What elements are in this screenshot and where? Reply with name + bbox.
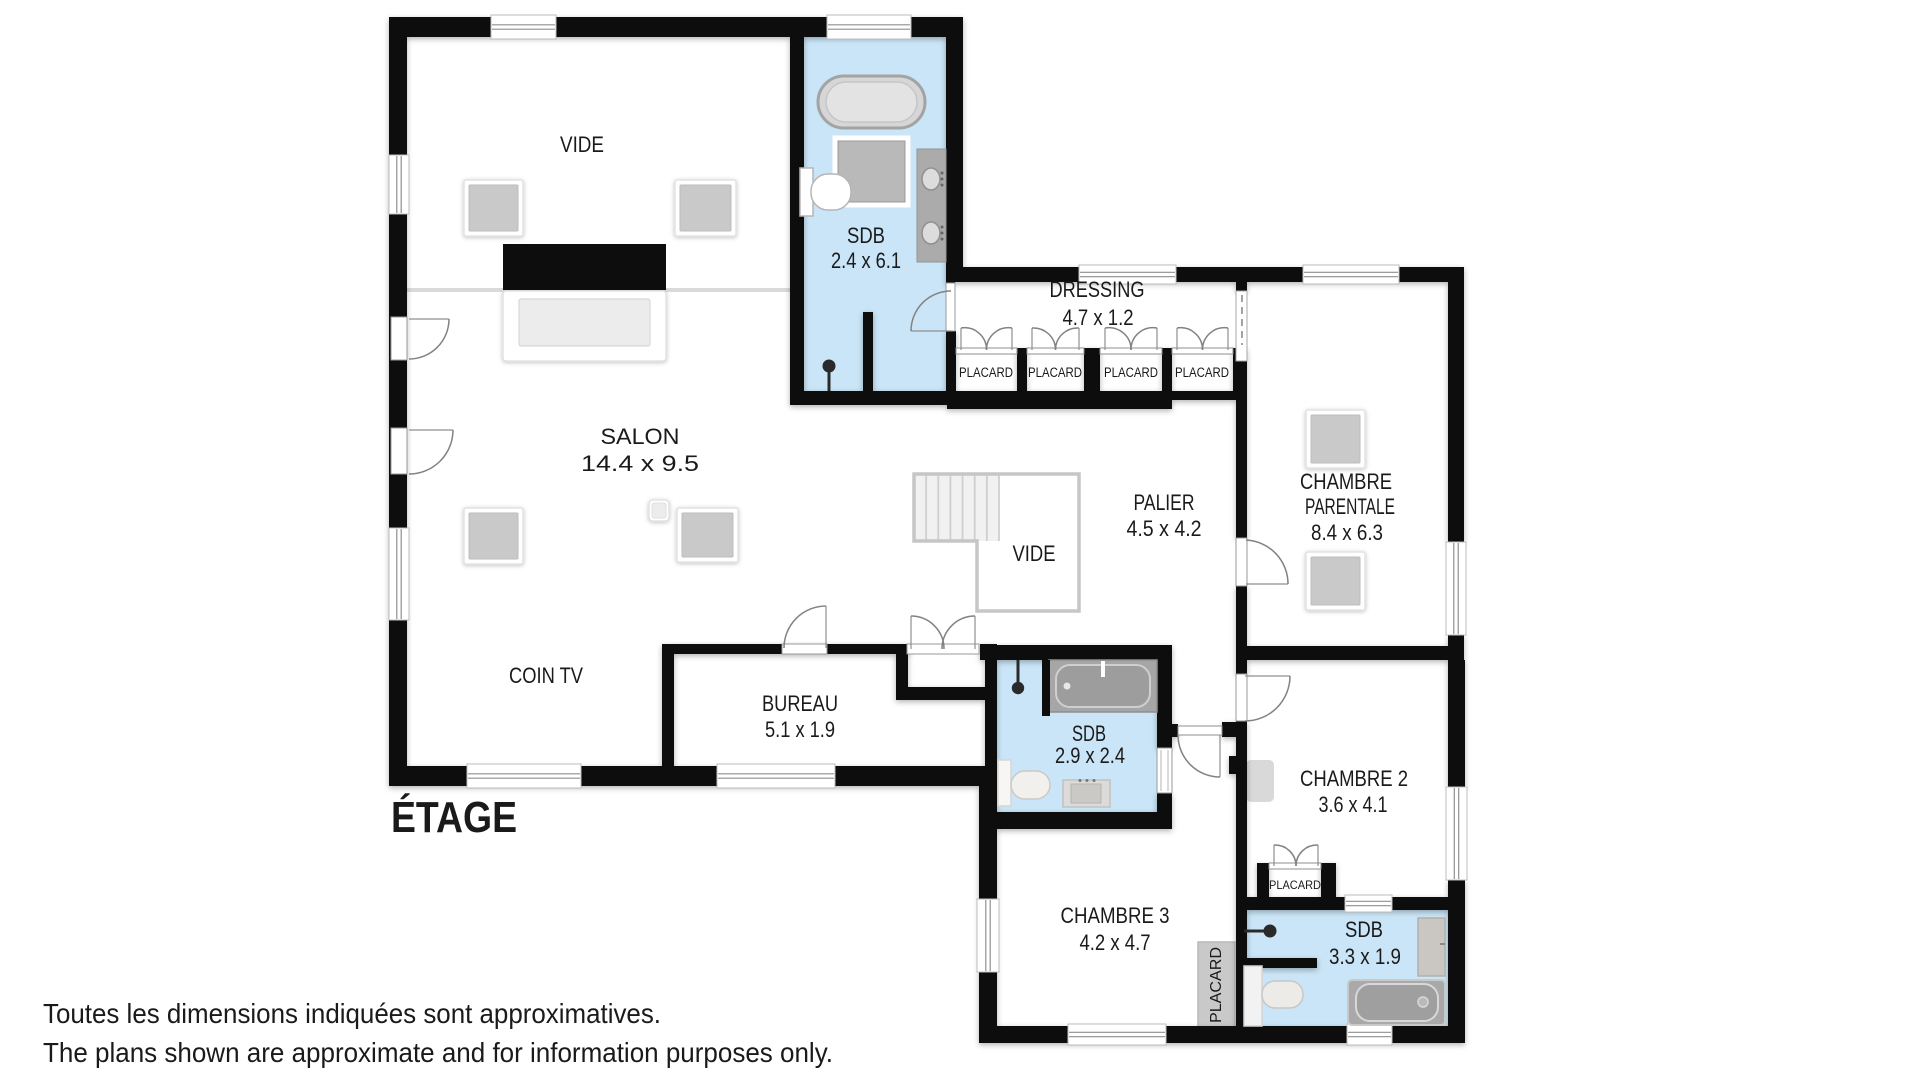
svg-text:2.9 x 2.4: 2.9 x 2.4: [1055, 743, 1125, 768]
svg-text:8.4 x 6.3: 8.4 x 6.3: [1311, 520, 1383, 545]
svg-text:Toutes les dimensions indiquée: Toutes les dimensions indiquées sont app…: [43, 998, 661, 1029]
svg-text:3.6 x 4.1: 3.6 x 4.1: [1319, 792, 1388, 817]
svg-text:VIDE: VIDE: [560, 132, 604, 157]
svg-text:4.7 x 1.2: 4.7 x 1.2: [1063, 305, 1134, 330]
svg-text:3.3 x 1.9: 3.3 x 1.9: [1329, 944, 1401, 969]
svg-text:SALON: SALON: [601, 424, 680, 449]
svg-text:14.4 x 9.5: 14.4 x 9.5: [581, 451, 699, 476]
svg-text:CHAMBRE 3: CHAMBRE 3: [1061, 903, 1170, 928]
svg-text:SDB: SDB: [847, 223, 885, 248]
svg-text:BUREAU: BUREAU: [762, 691, 838, 716]
svg-text:2.4 x 6.1: 2.4 x 6.1: [831, 248, 901, 273]
svg-text:COIN TV: COIN TV: [509, 663, 583, 688]
svg-text:CHAMBRE 2: CHAMBRE 2: [1300, 766, 1408, 791]
svg-text:4.2 x 4.7: 4.2 x 4.7: [1080, 930, 1151, 955]
svg-text:PLACARD: PLACARD: [959, 365, 1013, 380]
svg-text:The plans shown are approximat: The plans shown are approximate and for …: [43, 1037, 833, 1068]
svg-text:PLACARD: PLACARD: [1269, 880, 1321, 892]
svg-text:PLACARD: PLACARD: [1104, 365, 1158, 380]
svg-text:PLACARD: PLACARD: [1208, 947, 1225, 1023]
svg-text:DRESSING: DRESSING: [1050, 277, 1145, 302]
svg-text:5.1 x 1.9: 5.1 x 1.9: [765, 717, 835, 742]
svg-text:ÉTAGE: ÉTAGE: [391, 792, 517, 842]
svg-text:CHAMBRE: CHAMBRE: [1300, 469, 1392, 494]
svg-text:PARENTALE: PARENTALE: [1305, 494, 1395, 519]
svg-text:PALIER: PALIER: [1134, 490, 1195, 515]
svg-text:PLACARD: PLACARD: [1028, 365, 1082, 380]
svg-text:PLACARD: PLACARD: [1175, 365, 1229, 380]
svg-text:4.5 x 4.2: 4.5 x 4.2: [1127, 516, 1202, 541]
svg-text:SDB: SDB: [1345, 917, 1383, 942]
svg-text:VIDE: VIDE: [1013, 541, 1056, 566]
